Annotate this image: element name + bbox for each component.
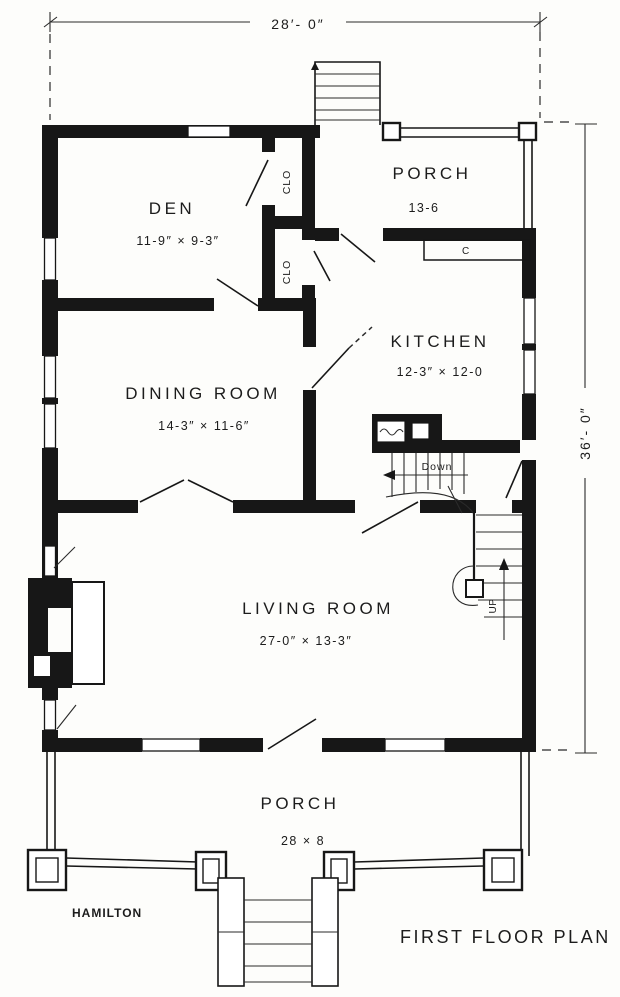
stairs-down-label: Down — [422, 461, 453, 473]
room-size-dining: 14-3″ × 11-6″ — [158, 419, 250, 433]
room-size-rear-porch: 13-6 — [408, 201, 439, 215]
floor-plan-drawing: 28′- 0″ 36′- 0″ — [0, 0, 620, 997]
front-steps — [218, 878, 338, 986]
annotations: HAMILTON FIRST FLOOR PLAN — [72, 906, 611, 947]
icebox — [372, 414, 442, 453]
staircase — [383, 453, 522, 640]
front-porch-structure — [28, 752, 529, 890]
dimension-depth: 36′- 0″ — [542, 122, 597, 753]
room-label-kitchen: KITCHEN — [390, 332, 489, 351]
dimension-width: 28′- 0″ — [44, 10, 547, 120]
back-steps — [311, 62, 380, 125]
closet-label-upper: CLO — [281, 170, 293, 195]
room-size-den: 11-9″ × 9-3″ — [136, 234, 219, 248]
room-label-dining: DINING ROOM — [125, 384, 281, 403]
room-size-kitchen: 12-3″ × 12-0 — [397, 365, 484, 379]
room-size-living: 27-0″ × 13-3″ — [260, 634, 353, 648]
blueprint-page: 28′- 0″ 36′- 0″ — [0, 0, 620, 997]
dimension-depth-label: 36′- 0″ — [577, 406, 593, 460]
fireplace — [28, 578, 104, 688]
room-label-den: DEN — [149, 199, 195, 218]
kitchen-counter: C — [424, 240, 530, 260]
room-label-rear-porch: PORCH — [393, 164, 472, 183]
architect-signature: HAMILTON — [72, 906, 142, 920]
closet-label-lower: CLO — [281, 260, 293, 285]
room-label-living: LIVING ROOM — [242, 599, 394, 618]
sheet-title: FIRST FLOOR PLAN — [400, 927, 611, 947]
room-label-front-porch: PORCH — [261, 794, 340, 813]
room-size-front-porch: 28 × 8 — [281, 834, 325, 848]
stairs-up-label: UP — [488, 599, 499, 614]
dimension-width-label: 28′- 0″ — [271, 16, 325, 32]
counter-label: C — [462, 246, 470, 257]
